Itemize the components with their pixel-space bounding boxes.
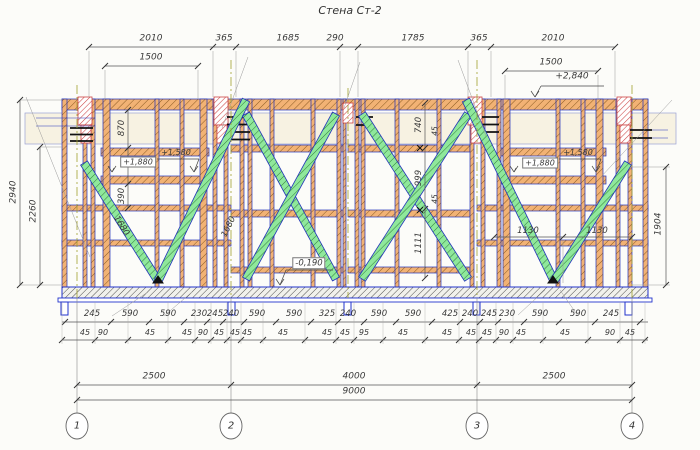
grid-bubble xyxy=(66,413,88,439)
grid-bubble xyxy=(621,413,643,439)
drawing-title: Стена Ст-2 xyxy=(0,4,700,17)
grid-bubble xyxy=(466,413,488,439)
wall-framing-drawing xyxy=(0,0,700,450)
grid-bubbles xyxy=(66,413,643,439)
grid-bubble xyxy=(220,413,242,439)
drawing-canvas: Стена Ст-2 12342010365168529017853652010… xyxy=(0,0,700,450)
bottom-plate xyxy=(58,287,652,315)
